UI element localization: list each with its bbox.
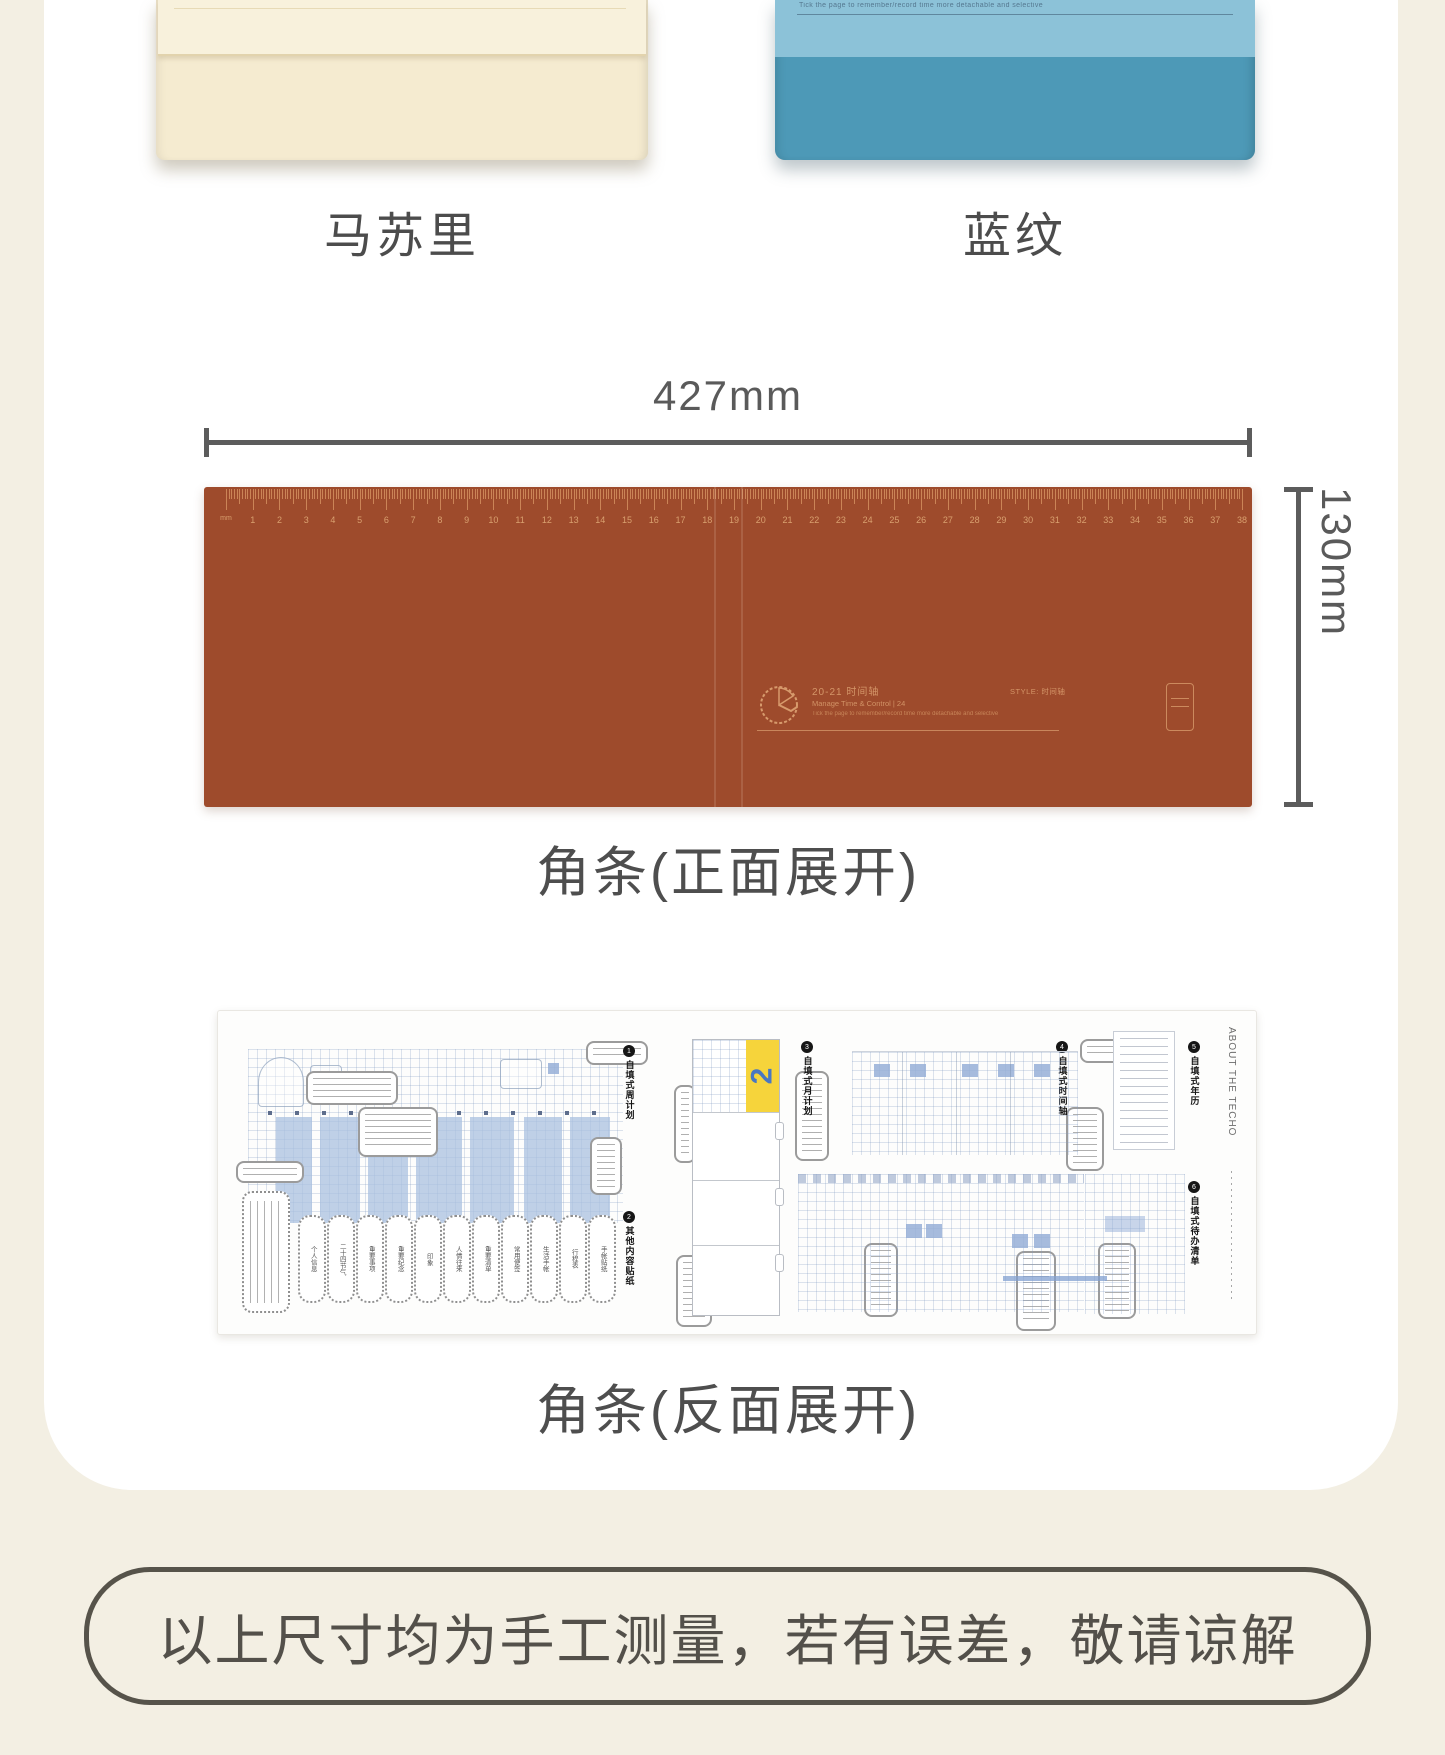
ruler-tick — [1071, 489, 1072, 499]
ruler-tick — [1218, 489, 1219, 499]
ruler-tick — [790, 489, 791, 499]
ruler-tick — [1154, 489, 1155, 499]
ruler-tick — [384, 489, 385, 499]
ruler-tick — [402, 489, 403, 499]
ruler-tick — [814, 489, 815, 510]
ruler-tick — [977, 489, 978, 499]
ruler-tick — [1215, 489, 1216, 510]
ruler-tick — [924, 489, 925, 499]
ruler-tick — [1066, 489, 1067, 499]
ruler-tick — [469, 489, 470, 499]
ruler-tick — [1130, 489, 1131, 499]
cell-row — [798, 1174, 1084, 1183]
ruler-number: 18 — [702, 515, 712, 525]
ruler-tick — [681, 489, 682, 510]
section-title: 自填式年历 — [1190, 1056, 1199, 1106]
ruler-tick — [707, 489, 708, 510]
column-line — [902, 1052, 903, 1155]
ruler-tick — [408, 489, 409, 499]
blue-cell — [1034, 1064, 1050, 1077]
ruler-tick — [929, 489, 930, 499]
ruler-tick — [306, 489, 307, 510]
cover-micro-text: Tick the page to remember/record time mo… — [799, 2, 1229, 9]
callout-note — [306, 1071, 398, 1105]
ruler-tick — [523, 489, 524, 499]
ruler-tick — [397, 489, 398, 499]
strip-print-rule — [757, 730, 1059, 731]
corner-strip-front: mm12345678910111213141516171819202122232… — [204, 487, 1252, 807]
ruler-tick — [550, 489, 551, 499]
ruler-tick — [825, 489, 826, 499]
ruler-tick — [461, 489, 462, 499]
section-header: 1 自填式周计划 — [623, 1045, 635, 1120]
ruler-tick — [1095, 489, 1096, 504]
height-dimension-line — [1296, 487, 1301, 807]
ruler-tick — [804, 489, 805, 499]
ruler-tick — [239, 489, 240, 504]
blue-cell — [906, 1224, 922, 1238]
ruler-tick — [1074, 489, 1075, 499]
ruler-tick — [282, 489, 283, 499]
blue-cell — [962, 1064, 978, 1077]
ruler-number: 29 — [996, 515, 1006, 525]
blue-cell — [874, 1064, 890, 1077]
ruler-tick — [1058, 489, 1059, 499]
ruler-tick — [328, 489, 329, 499]
ruler-tick — [884, 489, 885, 499]
ruler-tick — [651, 489, 652, 499]
ruler-tick — [301, 489, 302, 499]
ruler-tick — [616, 489, 617, 499]
ruler-tick — [1210, 489, 1211, 499]
ruler-tick — [304, 489, 305, 499]
ruler-tick — [472, 489, 473, 499]
ruler-tick — [1076, 489, 1077, 499]
blue-cell — [1034, 1234, 1050, 1248]
pill-text: 重要事项 — [367, 1246, 374, 1272]
ruler-tick — [1098, 489, 1099, 499]
ruler-tick — [392, 489, 393, 499]
ruler-tick — [892, 489, 893, 499]
ruler-tick — [1178, 489, 1179, 499]
ruler-tick — [1044, 489, 1045, 499]
ruler-tick — [234, 489, 235, 499]
ruler-tick — [1041, 489, 1042, 504]
ruler-tick — [833, 489, 834, 499]
ruler-tick — [614, 489, 615, 504]
ruler-tick — [410, 489, 411, 499]
section-number-badge: 6 — [1188, 1181, 1200, 1193]
ruler-number: 13 — [569, 515, 579, 525]
ruler-tick — [787, 489, 788, 510]
edge-tab — [775, 1188, 784, 1206]
ruler-tick — [528, 489, 529, 499]
ruler-tick — [1087, 489, 1088, 499]
pill-text: 个人信息 — [309, 1246, 316, 1272]
ruler-tick — [1060, 489, 1061, 499]
ruler-tick — [456, 489, 457, 499]
ruler-tick — [229, 489, 230, 499]
strip-print-title: 20-21 时间轴 — [812, 683, 879, 698]
callout-note — [590, 1137, 622, 1195]
ruler-tick — [812, 489, 813, 499]
label-pill: 常用便签 — [501, 1215, 529, 1303]
ruler-tick — [945, 489, 946, 499]
ruler-tick — [582, 489, 583, 499]
label-pill: 重要纪念 — [385, 1215, 413, 1303]
ruler-tick — [378, 489, 379, 499]
ruler-tick — [726, 489, 727, 499]
ruler-tick — [555, 489, 556, 499]
ruler-tick — [1079, 489, 1080, 499]
ruler-number: mm — [220, 515, 232, 522]
label-pill: 重要事项 — [356, 1215, 384, 1303]
ruler-tick — [386, 489, 387, 510]
ruler-tick — [844, 489, 845, 499]
ruler-number: 7 — [411, 515, 416, 525]
ruler-tick — [531, 489, 532, 499]
ruler-tick — [360, 489, 361, 510]
ruler-tick — [285, 489, 286, 499]
ruler-tick — [488, 489, 489, 499]
ruler-tick — [619, 489, 620, 499]
ruler-number: 34 — [1130, 515, 1140, 525]
ruler-tick — [1172, 489, 1173, 499]
ruler-tick — [729, 489, 730, 499]
ruler-tick — [475, 489, 476, 499]
ruler-tick — [646, 489, 647, 499]
ruler-tick — [357, 489, 358, 499]
ruler-tick — [758, 489, 759, 499]
ruler-tick — [969, 489, 970, 499]
ruler-tick — [499, 489, 500, 499]
ruler-tick — [951, 489, 952, 499]
ruler-tick — [592, 489, 593, 499]
section-number-badge: 3 — [801, 1041, 813, 1053]
ruler-tick — [689, 489, 690, 499]
strip-print-subtitle: Manage Time & Control | 24 — [812, 699, 905, 708]
ruler-tick — [336, 489, 337, 499]
ruler-number: 19 — [729, 515, 739, 525]
ruler-tick — [563, 489, 564, 499]
ruler-tick — [1175, 489, 1176, 504]
ruler-tick — [435, 489, 436, 499]
ruler-tick — [1111, 489, 1112, 499]
ruler-tick — [913, 489, 914, 499]
pill-text: 常用便签 — [512, 1246, 519, 1272]
ruler-tick — [600, 489, 601, 510]
blue-cell — [1105, 1216, 1145, 1232]
ruler-number: 11 — [515, 515, 524, 525]
ruler-tick — [1181, 489, 1182, 499]
ruler-tick — [766, 489, 767, 499]
ruler-tick — [389, 489, 390, 499]
label-pill: 重要清单 — [472, 1215, 500, 1303]
section-title: 自填式周计划 — [625, 1060, 634, 1120]
ruler-tick — [429, 489, 430, 499]
ruler-tick — [333, 489, 334, 510]
ruler-number: 30 — [1023, 515, 1033, 525]
ruler-number: 16 — [649, 515, 659, 525]
ruler-tick — [541, 489, 542, 499]
ruler-number: 25 — [889, 515, 899, 525]
notebook-top-band: Tick the page to remember/record time mo… — [775, 0, 1255, 57]
ruler-number: 14 — [595, 515, 605, 525]
ruler-tick — [314, 489, 315, 499]
fold-line — [741, 487, 743, 807]
ruler-number: 38 — [1237, 515, 1247, 525]
ruler-tick — [1020, 489, 1021, 499]
ruler-tick — [670, 489, 671, 499]
ruler-tick — [943, 489, 944, 499]
ruler-tick — [325, 489, 326, 499]
ruler-tick — [255, 489, 256, 499]
ruler-tick — [1124, 489, 1125, 499]
ruler-tick — [849, 489, 850, 499]
ruler-tick — [271, 489, 272, 499]
ruler-number: 28 — [970, 515, 980, 525]
ruler-tick — [309, 489, 310, 499]
ruler-tick — [761, 489, 762, 510]
ruler-tick — [937, 489, 938, 499]
ruler-tick — [571, 489, 572, 499]
ruler-tick — [860, 489, 861, 499]
ruler-tick — [349, 489, 350, 499]
ruler-tick — [413, 489, 414, 510]
ruler-tick — [697, 489, 698, 499]
ruler-tick — [370, 489, 371, 499]
ruler-tick — [1226, 489, 1227, 499]
ruler-tick — [734, 489, 735, 510]
ruler-tick — [673, 489, 674, 499]
ruler-tick — [1028, 489, 1029, 510]
ruler-tick — [675, 489, 676, 499]
ruler-tick — [1009, 489, 1010, 499]
ruler-tick — [622, 489, 623, 499]
strip-style-label: STYLE: 时间轴 — [1010, 686, 1065, 697]
pill-text: 重要纪念 — [396, 1246, 403, 1272]
doodle-shape — [258, 1057, 304, 1107]
clock-pie-icon — [757, 683, 801, 727]
section-header: 6 自填式待办清单 — [1188, 1181, 1200, 1266]
ruler-tick — [841, 489, 842, 510]
ruler-tick — [980, 489, 981, 499]
blue-cell — [910, 1064, 926, 1077]
yellow-index-tab: 2 — [746, 1040, 779, 1112]
ruler-tick — [771, 489, 772, 499]
ruler-tick — [416, 489, 417, 499]
ruler-tick — [956, 489, 957, 499]
about-the-techo-text: ABOUT THE TECHO — [1226, 1027, 1237, 1157]
ruler-tick — [1017, 489, 1018, 499]
ruler-tick — [341, 489, 342, 499]
ruler-tick — [627, 489, 628, 510]
ruler-tick — [828, 489, 829, 504]
ruler-tick — [566, 489, 567, 499]
ruler-tick — [640, 489, 641, 504]
ruler-tick — [1084, 489, 1085, 499]
ruler-tick — [1082, 489, 1083, 510]
ruler-tick — [795, 489, 796, 499]
ruler-tick — [710, 489, 711, 499]
ruler-tick — [961, 489, 962, 504]
ruler-tick — [656, 489, 657, 499]
ruler-tick — [1159, 489, 1160, 499]
ruler-tick — [1239, 489, 1240, 499]
ruler-tick — [560, 489, 561, 504]
ruler-tick — [1164, 489, 1165, 499]
pill-text: 重要清单 — [483, 1246, 490, 1272]
label-pill: 个人信息 — [298, 1215, 326, 1303]
ruler-tick — [483, 489, 484, 499]
ruler-tick — [927, 489, 928, 499]
ruler-tick — [648, 489, 649, 499]
ruler-tick — [1221, 489, 1222, 499]
ruler-tick — [846, 489, 847, 499]
section-title: 自填式月计划 — [803, 1056, 812, 1116]
ruler-tick — [579, 489, 580, 499]
width-dimension-line — [204, 440, 1252, 445]
pill-text: 二十四节气 — [338, 1243, 345, 1276]
ruler-tick — [996, 489, 997, 499]
ruler-tick — [1001, 489, 1002, 510]
ruler-tick — [440, 489, 441, 510]
blue-cell — [998, 1064, 1014, 1077]
ruler-tick — [504, 489, 505, 499]
ruler-tick — [427, 489, 428, 504]
ruler-tick — [1151, 489, 1152, 499]
ruler-tick — [1140, 489, 1141, 499]
ruler-tick — [1039, 489, 1040, 499]
ruler-tick — [1100, 489, 1101, 499]
notebook-crease-line — [174, 8, 626, 9]
ruler-tick — [755, 489, 756, 499]
ruler-tick — [590, 489, 591, 499]
ruler-tick — [785, 489, 786, 499]
ruler-tick — [1122, 489, 1123, 504]
ruler-tick — [1143, 489, 1144, 499]
ruler-tick — [678, 489, 679, 499]
ruler-tick — [745, 489, 746, 499]
content-card: Tick the page to remember/record time mo… — [44, 0, 1398, 1490]
ruler-tick — [1012, 489, 1013, 499]
ruler-tick — [322, 489, 323, 499]
blue-cell — [926, 1224, 942, 1238]
ruler-tick — [261, 489, 262, 499]
ruler-tick — [1031, 489, 1032, 499]
ruler-tick — [830, 489, 831, 499]
ruler-tick — [245, 489, 246, 499]
ruler-tick — [258, 489, 259, 499]
ruler-tick — [1170, 489, 1171, 499]
ruler-tick — [1223, 489, 1224, 499]
notebook-photo-lanwen: Tick the page to remember/record time mo… — [775, 0, 1255, 160]
height-dimension-label: 130mm — [1312, 487, 1360, 807]
ruler-tick — [376, 489, 377, 499]
width-dimension-label: 427mm — [204, 372, 1252, 420]
ruler-tick — [1092, 489, 1093, 499]
ruler-scale: mm12345678910111213141516171819202122232… — [226, 489, 1242, 539]
ruler-tick — [983, 489, 984, 499]
ruler-tick — [667, 489, 668, 504]
ruler-tick — [247, 489, 248, 499]
cover-rule-line — [797, 14, 1233, 15]
ruler-tick — [547, 489, 548, 510]
ruler-tick — [1108, 489, 1109, 510]
ruler-tick — [964, 489, 965, 499]
ruler-tick — [632, 489, 633, 499]
ruler-tick — [453, 489, 454, 504]
section-header: 5 自填式年历 — [1188, 1041, 1200, 1106]
ruler-tick — [368, 489, 369, 499]
ruler-tick — [750, 489, 751, 499]
ruler-tick — [822, 489, 823, 499]
ruler-tick — [608, 489, 609, 499]
ruler-tick — [279, 489, 280, 510]
year-list-panel — [1113, 1031, 1175, 1150]
ruler-tick — [940, 489, 941, 499]
ruler-tick — [1049, 489, 1050, 499]
ruler-tick — [798, 489, 799, 499]
ruler-tick — [1135, 489, 1136, 510]
ruler-tick — [365, 489, 366, 499]
ruler-tick — [250, 489, 251, 499]
ruler-tick — [445, 489, 446, 499]
callout-note — [586, 1041, 648, 1065]
ruler-tick — [624, 489, 625, 499]
ruler-tick — [451, 489, 452, 499]
ruler-tick — [485, 489, 486, 499]
ruler-tick — [515, 489, 516, 499]
label-pill: 生活手帐 — [530, 1215, 558, 1303]
ruler-tick — [1007, 489, 1008, 499]
ruler-number: 15 — [622, 515, 632, 525]
ruler-tick — [932, 489, 933, 499]
ruler-tick — [576, 489, 577, 499]
ruler-tick — [1116, 489, 1117, 499]
ruler-tick — [967, 489, 968, 499]
ruler-tick — [603, 489, 604, 499]
callout-note — [236, 1161, 304, 1183]
ruler-tick — [1068, 489, 1069, 504]
ruler-tick — [664, 489, 665, 499]
timeline-column — [470, 1117, 514, 1223]
ruler-tick — [501, 489, 502, 499]
edge-tab — [775, 1254, 784, 1272]
ruler-tick — [362, 489, 363, 499]
ruler-tick — [274, 489, 275, 499]
brand-mark-icon — [1166, 683, 1194, 731]
ruler-tick — [480, 489, 481, 504]
ruler-tick — [277, 489, 278, 499]
pill-text: 印象 — [425, 1253, 432, 1266]
ruler-tick — [320, 489, 321, 504]
pill-text: 行程表 — [570, 1249, 577, 1269]
ruler-number: 26 — [916, 515, 926, 525]
ruler-tick — [916, 489, 917, 499]
ruler-tick — [868, 489, 869, 510]
ruler-tick — [873, 489, 874, 499]
ruler-tick — [908, 489, 909, 504]
ruler-number: 2 — [277, 515, 282, 525]
ruler-tick — [231, 489, 232, 499]
ruler-tick — [988, 489, 989, 504]
ruler-tick — [373, 489, 374, 504]
ruler-number: 1 — [250, 515, 255, 525]
blue-cell — [1012, 1234, 1028, 1248]
ruler-number: 12 — [542, 515, 552, 525]
ruler-tick — [552, 489, 553, 499]
